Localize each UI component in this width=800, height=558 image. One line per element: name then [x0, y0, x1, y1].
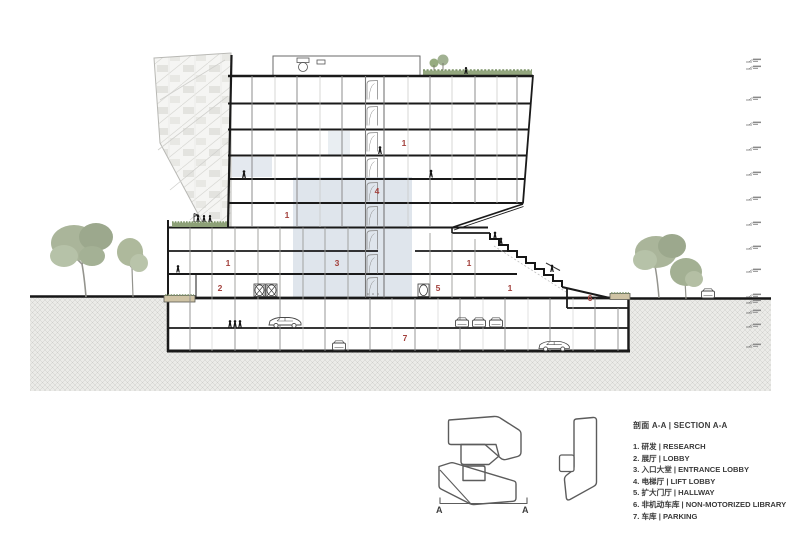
elevation-marker — [746, 66, 761, 69]
architectural-section-sheet: 1 4 1 1 2 3 1 5 1 6 7 — [0, 0, 800, 558]
car-front-icon — [333, 341, 346, 350]
cantilever-soffit — [452, 204, 523, 228]
roof-garden — [423, 55, 532, 76]
key-plans — [439, 416, 597, 504]
mullions-basement — [212, 298, 573, 351]
room-label-research-right-low: 1 — [508, 283, 513, 293]
tree-left-large — [50, 223, 113, 297]
room-label-entrance-lobby: 3 — [335, 258, 340, 268]
elevation-marker — [746, 246, 761, 249]
elevation-marker — [746, 97, 761, 100]
room-label-research-mid: 1 — [285, 210, 290, 220]
room-label-research-right: 1 — [467, 258, 472, 268]
curtain-wall-facade — [154, 53, 231, 227]
car-front-icon — [490, 318, 503, 327]
elevation-marker — [746, 59, 761, 62]
parking-cars — [269, 318, 569, 351]
room-label-non-motorized: 6 — [588, 293, 593, 303]
legend-item: 7. 车库 | PARKING — [633, 511, 797, 523]
elevation-marker — [746, 222, 761, 225]
elevation-marker — [746, 197, 761, 200]
roof-penthouse — [273, 56, 420, 76]
door-icon — [418, 284, 429, 297]
planter-right — [610, 293, 630, 300]
room-label-parking: 7 — [403, 333, 408, 343]
person-icon — [493, 232, 497, 239]
car-side-icon — [269, 318, 301, 328]
person-icon — [228, 320, 232, 327]
room-label-lobby: 2 — [218, 283, 223, 293]
elevation-marker — [746, 172, 761, 175]
tree-left-small — [117, 238, 148, 297]
tree-right-small — [670, 258, 703, 299]
tower-right-edge — [523, 75, 533, 203]
legend-item: 6. 非机动车库 | NON-MOTORIZED LIBRARY — [633, 499, 797, 511]
section-label-a-left: A — [436, 505, 443, 515]
legend-item: 3. 入口大堂 | ENTRANCE LOBBY — [633, 464, 797, 476]
legend-item: 5. 扩大门厅 | HALLWAY — [633, 487, 797, 499]
legend-item: 4. 电梯厅 | LIFT LOBBY — [633, 476, 797, 488]
keyplan-ground-level — [439, 463, 516, 505]
section-label-a-right: A — [522, 505, 529, 515]
room-label-hallway: 5 — [436, 283, 441, 293]
car-front-icon — [456, 318, 469, 327]
legend-item: 2. 展厅 | LOBBY — [633, 453, 797, 465]
legend: 剖面 A-A | SECTION A-A 1. 研发 | RESEARCH 2.… — [633, 420, 797, 522]
room-label-research-top: 1 — [402, 138, 407, 148]
keyplan-upper-level — [449, 416, 522, 464]
car-front-icon — [473, 318, 486, 327]
ground-hatch — [30, 297, 771, 392]
room-label-lift-lobby: 4 — [375, 186, 380, 196]
person-icon — [378, 146, 382, 154]
legend-list: 1. 研发 | RESEARCH 2. 展厅 | LOBBY 3. 入口大堂 |… — [633, 441, 797, 522]
person-icon — [176, 265, 180, 272]
elevation-marker — [746, 122, 761, 125]
legend-title: 剖面 A-A | SECTION A-A — [633, 420, 797, 431]
revolving-door-icon — [254, 284, 277, 297]
elevation-marker — [746, 294, 761, 297]
legend-item: 1. 研发 | RESEARCH — [633, 441, 797, 453]
elevation-marker — [746, 147, 761, 150]
person-icon — [238, 320, 242, 327]
room-label-research-wing: 1 — [226, 258, 231, 268]
keyplan-side-volume — [560, 417, 597, 499]
wing-green-roof — [172, 222, 227, 227]
car-on-road-icon — [702, 289, 715, 298]
elevation-marker — [746, 269, 761, 272]
